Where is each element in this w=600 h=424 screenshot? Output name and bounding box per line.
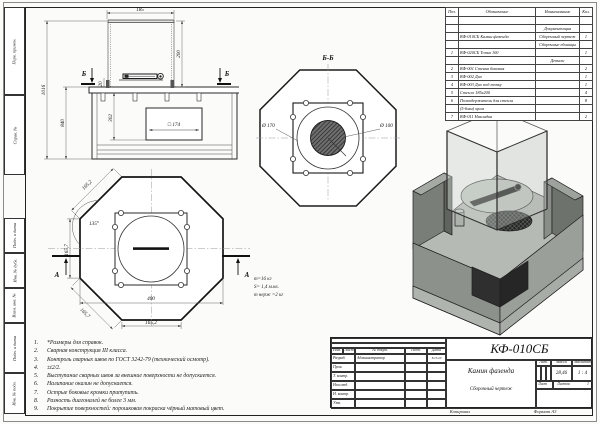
row-tkontr: Т. контр. — [331, 372, 355, 381]
tkontr-signature — [405, 372, 427, 381]
sheets-label: Листов — [557, 383, 570, 387]
nkontr-signature — [405, 390, 427, 399]
table-row: 6Полкодержатель для стекла8 — [446, 97, 593, 105]
row-utv: Утв. — [331, 399, 355, 409]
col-name: Наименование — [536, 8, 580, 17]
nkontr-date — [427, 390, 446, 399]
parts-table-header: Поз. Обозначение Наименование Кол. — [446, 8, 593, 17]
section-label-a-right: А — [244, 271, 250, 279]
razrab-signature — [405, 354, 427, 363]
prov-date — [427, 363, 446, 372]
row-nachotd: Нач.отд. — [331, 381, 355, 390]
mass-value: 28,46 — [551, 366, 572, 381]
note-item: 2.Сварная конструкция III класса. — [30, 347, 328, 355]
razrab-name: Администратор — [355, 354, 405, 363]
dim-174: □ 174 — [168, 121, 181, 128]
row-razrab: Разраб. — [331, 354, 355, 363]
row-prov: Пров. — [331, 363, 355, 372]
table-row: Сборочные единицы — [446, 41, 593, 49]
utv-date — [427, 399, 446, 409]
dim-302-lines — [110, 93, 146, 140]
section-label-b-left: Б — [81, 70, 87, 78]
note-item: 8.Разность диагоналей не более 3 мм. — [30, 397, 328, 405]
note-item: 3.Контроль сварных швов по ГОСТ 3242-79 … — [30, 356, 328, 364]
col-qty: Кол. — [580, 8, 593, 17]
mass-stainless-line: m нерж =2 кг — [254, 292, 283, 300]
table-row — [446, 17, 593, 25]
note-item: 9.Покрытие поверхностей: порошковая покр… — [30, 405, 328, 413]
dim-840-lines — [63, 87, 89, 159]
utv-signature — [405, 399, 427, 409]
table-row: (5-6мм) хром — [446, 105, 593, 113]
section-label-a-left: А — [54, 271, 60, 279]
tkontr-date — [427, 372, 446, 381]
margin-field-perv-primen: Перв. примен. — [4, 7, 25, 95]
burner-knob — [125, 75, 129, 78]
parts-table: Поз. Обозначение Наименование Кол. Докум… — [445, 7, 593, 121]
document-type: Сборочный чертеж — [447, 387, 535, 392]
tkontr-name — [355, 372, 405, 381]
col-designation: Обозначение — [459, 8, 536, 17]
drawing-sheet: { "margin_fields": { "f1": "Перв. примен… — [0, 0, 600, 424]
sheets-cell: Листов 1 — [553, 381, 593, 389]
dim-edge-top: 165,2 — [81, 179, 94, 192]
top-view: 165,2 135° 165,7 165,7 400 165,2 А А — [26, 166, 255, 338]
margin-label: Подп. и дата — [12, 223, 17, 248]
dim-angle: 135° — [89, 220, 99, 227]
dim-edge-bottom-left: 165,7 — [78, 307, 91, 320]
table-row: 3КФ-002 Дно1 — [446, 73, 593, 81]
table-row: 7КФ-011 Накладка2 — [446, 113, 593, 121]
platform-band — [89, 87, 239, 93]
margin-label: Перв. примен. — [12, 38, 17, 64]
title-block: Изм. Лист № докум. Подп. Дата Разраб. Ад… — [330, 337, 592, 408]
note-item: 6.Налипание окалин не допускается. — [30, 380, 328, 388]
margin-field-inv-dubl: Инв. № дубл. — [4, 253, 25, 288]
document-number: КФ-010СБ — [446, 338, 593, 360]
copied-label: Копировал — [420, 409, 500, 414]
technical-notes: 1.*Размеры для справок. 2.Сварная констр… — [30, 339, 328, 414]
table-row: 1КФ-020СБ Топка 1001 — [446, 49, 593, 57]
glass-enclosure — [447, 110, 547, 230]
flame-dot-icon — [159, 75, 161, 77]
sheet-label: Лист — [536, 381, 553, 389]
scale-value: 1 : 4 — [572, 366, 593, 381]
table-row: 4КФ-003 Дно под топку1 — [446, 81, 593, 89]
note-item: 5.Выступание сварных швов за внешние пов… — [30, 372, 328, 380]
dim-d170: Ø 170 — [261, 123, 275, 129]
section-view-bb: Б-Б Ø 170 Ø 100 — [240, 50, 416, 212]
dim-d100: Ø 100 — [379, 123, 393, 129]
product-name-cell: Камин фазенда Сборочный чертеж — [446, 360, 536, 409]
margin-label: Подп. и дата — [12, 335, 17, 360]
nachotd-name — [355, 381, 405, 390]
note-item: 4.±t2/2. — [30, 364, 328, 372]
dim-200: 200 — [176, 50, 182, 58]
dim-edge-bottom: 165,2 — [145, 320, 157, 326]
margin-field-podp-data-1: Подп. и дата — [4, 218, 25, 253]
table-row: Детали — [446, 57, 593, 65]
margin-field-inv-podl: Инв. № подл. — [4, 373, 25, 414]
dim-side-left: 165,7 — [64, 244, 70, 256]
nachotd-date — [427, 381, 446, 390]
dim-400: 400 — [147, 295, 155, 302]
front-view: □ 174 185 200 1016 840 302 20 Б Б — [37, 4, 239, 170]
sheets-value: 1 — [587, 383, 589, 387]
mass-annotation: m=16 кг S= 1,4 м.кв. m нерж =2 кг — [254, 276, 283, 300]
dim-20: 20 — [98, 81, 104, 87]
row-nkontr: Н. контр. — [331, 390, 355, 399]
format-label: Формат А3 — [510, 409, 580, 414]
margin-label: Справ. № — [12, 126, 17, 144]
mount-clips — [101, 93, 201, 101]
table-row: 5Стекло 185х2004 — [446, 89, 593, 97]
razrab-date: 8.15.20 — [427, 354, 446, 363]
table-row: КФ-010СБ Камин фазендаСборочный чертеж1 — [446, 33, 593, 41]
margin-field-vzam-inv: Взам. инв. № — [4, 288, 25, 323]
prov-name — [355, 363, 405, 372]
nachotd-signature — [405, 381, 427, 390]
note-item: 1.*Размеры для справок. — [30, 339, 328, 347]
col-pos: Поз. — [446, 8, 459, 17]
organization-cell — [536, 389, 593, 409]
dim-185: 185 — [136, 7, 144, 13]
margin-field-podp-data-2: Подп. и дата — [4, 323, 25, 373]
dim-1016: 1016 — [41, 84, 47, 95]
table-row: Документация — [446, 25, 593, 33]
margin-label: Инв. № дубл. — [12, 259, 17, 283]
table-row: 2КФ-001 Стенка боковая2 — [446, 65, 593, 73]
area-line: S= 1,4 м.кв. — [254, 284, 283, 292]
dim-302: 302 — [108, 114, 114, 122]
prov-signature — [405, 363, 427, 372]
burner-slot-top — [133, 247, 169, 250]
glass-top-cap — [108, 20, 174, 22]
mass-line: m=16 кг — [254, 276, 283, 284]
note-item: 7.Острые боковые кромки притупить. — [30, 389, 328, 397]
margin-label: Взам. инв. № — [12, 293, 17, 317]
product-name: Камин фазенда — [447, 367, 535, 375]
section-label-b-right: Б — [224, 70, 230, 78]
nkontr-name — [355, 390, 405, 399]
isometric-view — [402, 103, 592, 338]
section-bb-title: Б-Б — [321, 54, 334, 62]
margin-label: Инв. № подл. — [12, 381, 17, 405]
dim-840: 840 — [59, 119, 66, 127]
margin-field-sprav-no: Справ. № — [4, 95, 25, 175]
utv-name — [355, 399, 405, 409]
